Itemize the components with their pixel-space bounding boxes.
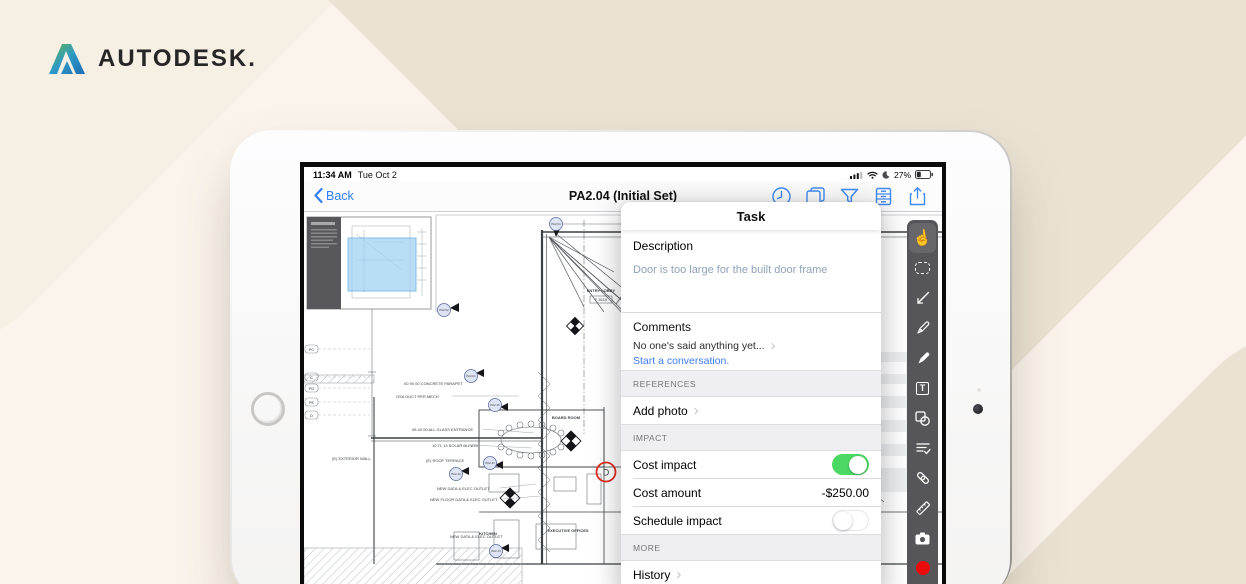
history-row[interactable]: History › <box>621 561 881 584</box>
section-references: REFERENCES <box>621 370 881 397</box>
svg-text:PA2.13: PA2.13 <box>491 549 501 553</box>
marketing-canvas: AUTODESK. 11:34 AM Tue Oct 2 <box>0 0 1246 584</box>
ruler-tool[interactable] <box>909 493 936 523</box>
chevron-right-icon: › <box>676 567 681 582</box>
hatched-terrace <box>304 548 522 584</box>
comments-cell[interactable]: Comments No one's said anything yet... ›… <box>621 313 881 370</box>
ruler-icon <box>915 500 931 516</box>
ipad-screen: 11:34 AM Tue Oct 2 <box>300 162 946 584</box>
shapes-icon <box>914 410 931 427</box>
lasso-select-tool[interactable] <box>909 253 936 283</box>
brand-wordmark: AUTODESK. <box>98 45 257 73</box>
ipad-device: 11:34 AM Tue Oct 2 <box>230 130 1012 584</box>
comments-label: Comments <box>633 320 869 334</box>
line-icon <box>915 290 931 306</box>
add-photo-row[interactable]: Add photo › <box>621 397 881 424</box>
comments-empty-text: No one's said anything yet... <box>633 340 765 352</box>
chevron-right-icon: › <box>694 403 699 418</box>
link-icon <box>915 470 931 486</box>
task-panel: Task Description Door is too large for t… <box>621 202 881 584</box>
svg-text:PA2.15: PA2.15 <box>490 403 500 407</box>
pen-tool[interactable] <box>909 313 936 343</box>
description-value[interactable]: Door is too large for the built door fra… <box>633 264 869 276</box>
cost-impact-row: Cost impact <box>621 451 881 478</box>
svg-text:PA2.01: PA2.01 <box>551 222 561 226</box>
cost-impact-toggle[interactable] <box>832 454 869 475</box>
right-rooms <box>877 352 909 492</box>
hatched-wall <box>304 375 374 383</box>
hand-icon: ☝ <box>912 229 933 246</box>
svg-text:ENTRY LOBBY: ENTRY LOBBY <box>587 288 616 293</box>
svg-text:NEW DATA & ELEC OUTLET: NEW DATA & ELEC OUTLET <box>437 486 490 491</box>
battery-percent: 27% <box>894 170 911 180</box>
svg-text:NEW FLOOR DATA & ELEC OUTLET: NEW FLOOR DATA & ELEC OUTLET <box>430 497 498 502</box>
shapes-tool[interactable] <box>909 403 936 433</box>
task-marker: PA2.15 <box>489 399 509 412</box>
status-time: 11:34 AM <box>313 170 352 180</box>
svg-text:NEW DATA & ELEC OUTLET: NEW DATA & ELEC OUTLET <box>450 534 503 539</box>
autodesk-mark-icon <box>48 42 86 76</box>
svg-text:PC: PC <box>309 347 315 352</box>
red-annotation[interactable]: D <box>597 463 616 482</box>
schedule-impact-toggle[interactable] <box>832 510 869 531</box>
task-panel-title: Task <box>621 202 881 230</box>
task-marker: PA2.21 <box>484 457 504 470</box>
description-label: Description <box>633 239 869 253</box>
share-icon[interactable] <box>907 186 928 207</box>
text-tool-icon: T <box>916 382 929 395</box>
svg-text:BOARD ROOM: BOARD ROOM <box>552 415 581 420</box>
ipad-bezel: 11:34 AM Tue Oct 2 <box>232 132 1010 584</box>
text-tool[interactable]: T <box>909 373 936 403</box>
hand-pan-tool[interactable]: ☝ <box>909 223 936 253</box>
svg-text:PA2.12: PA2.12 <box>451 472 461 476</box>
sheet-thumbnail[interactable] <box>307 217 431 309</box>
svg-text:OSA DUCT PER MECH: OSA DUCT PER MECH <box>396 394 439 399</box>
cost-amount-value[interactable]: -$250.00 <box>822 486 869 500</box>
markup-tool-rail: ☝ <box>907 220 938 584</box>
svg-text:10 71 13 SOLAR BLINDS: 10 71 13 SOLAR BLINDS <box>432 443 478 448</box>
record-tool[interactable] <box>909 553 936 583</box>
cost-amount-row[interactable]: Cost amount -$250.00 <box>621 479 881 506</box>
task-marker: PA2.01 <box>550 218 563 238</box>
camera-icon <box>914 531 931 546</box>
svg-text:PE: PE <box>309 400 315 405</box>
battery-icon <box>915 170 934 179</box>
svg-text:F-5110: F-5110 <box>595 297 608 302</box>
cellular-signal-icon <box>850 171 863 179</box>
status-date: Tue Oct 2 <box>358 170 397 180</box>
autodesk-logo: AUTODESK. <box>48 42 257 76</box>
chevron-right-icon: › <box>771 338 776 353</box>
sensor-dot <box>977 388 981 392</box>
markup-list-tool[interactable] <box>909 433 936 463</box>
pen-icon <box>915 320 931 336</box>
viewport-indicator[interactable] <box>348 238 416 291</box>
app-screen: 11:34 AM Tue Oct 2 <box>304 167 942 584</box>
svg-text:(E) EXTERIOR WALL: (E) EXTERIOR WALL <box>332 456 372 461</box>
home-button[interactable] <box>251 392 285 426</box>
task-marker: PA2.01 <box>465 369 485 383</box>
camera-tool[interactable] <box>909 523 936 553</box>
do-not-disturb-moon-icon <box>882 171 890 179</box>
svg-text:00 90 00 CONCRETE PARAPET: 00 90 00 CONCRETE PARAPET <box>404 381 463 386</box>
section-impact: IMPACT <box>621 424 881 451</box>
link-tool[interactable] <box>909 463 936 493</box>
svg-text:PA2.21: PA2.21 <box>485 461 495 465</box>
marker-tool[interactable] <box>909 343 936 373</box>
markup-list-icon <box>915 440 931 456</box>
record-icon <box>916 561 930 575</box>
task-marker: PA2.02 <box>438 303 460 317</box>
svg-text:(E) ROOF TERRACE: (E) ROOF TERRACE <box>426 458 464 463</box>
lasso-icon <box>915 262 930 274</box>
marker-icon <box>915 350 931 366</box>
task-marker: PA2.12 <box>450 467 470 481</box>
line-tool[interactable] <box>909 283 936 313</box>
svg-text:D: D <box>603 468 610 478</box>
status-bar: 11:34 AM Tue Oct 2 <box>304 167 942 182</box>
svg-text:EXECUTIVE OFFICES: EXECUTIVE OFFICES <box>547 528 588 533</box>
start-conversation-link[interactable]: Start a conversation. <box>633 355 869 367</box>
camera-dot <box>973 404 983 414</box>
schedule-impact-row: Schedule impact <box>621 507 881 534</box>
svg-text:PA2.02: PA2.02 <box>439 308 449 312</box>
wifi-icon <box>867 171 878 179</box>
svg-text:PA2.01: PA2.01 <box>466 374 476 378</box>
svg-text:D: D <box>310 413 313 418</box>
svg-text:PD: PD <box>309 386 315 391</box>
svg-text:08 40 00 ALL GLASS ENTRANCE: 08 40 00 ALL GLASS ENTRANCE <box>412 427 473 432</box>
description-cell[interactable]: Description Door is too large for the bu… <box>621 230 881 312</box>
section-more: MORE <box>621 534 881 561</box>
